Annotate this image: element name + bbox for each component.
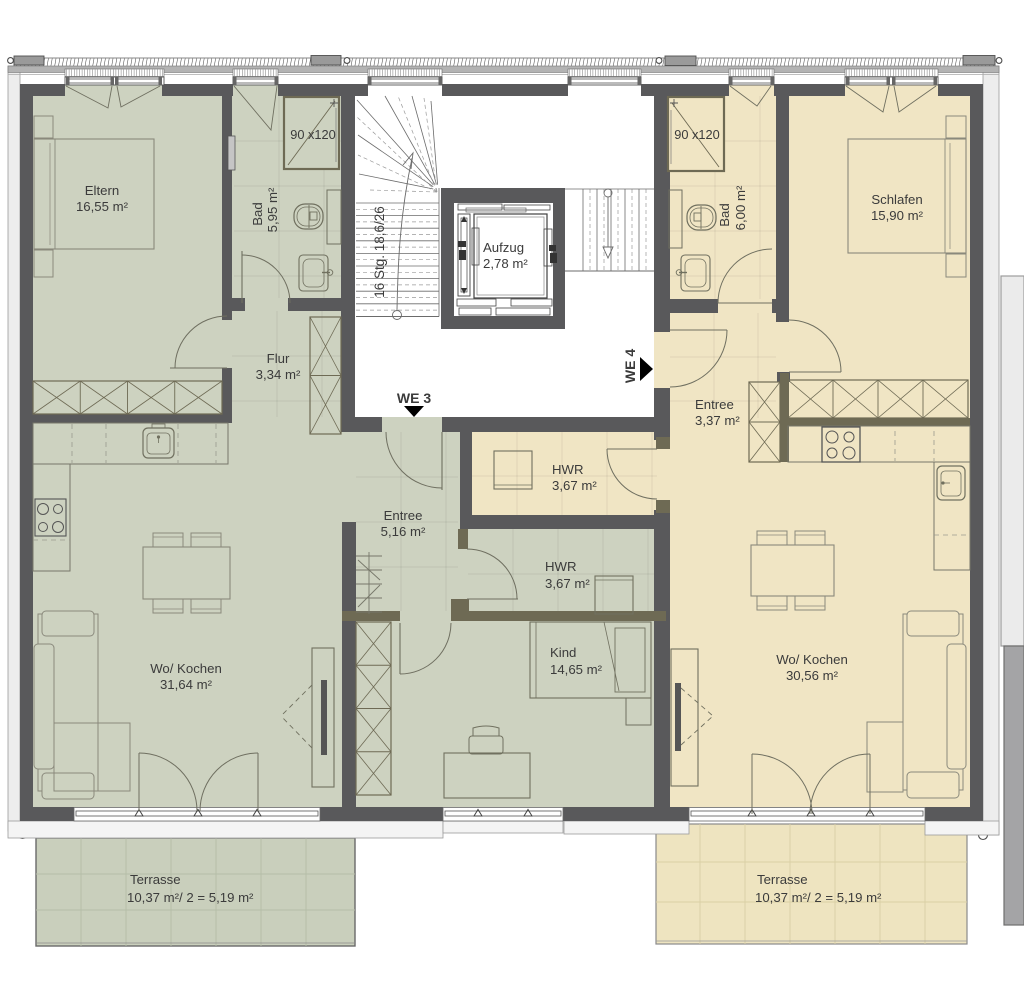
svg-text:Schlafen: Schlafen	[871, 192, 922, 207]
svg-text:5,95 m²: 5,95 m²	[265, 187, 280, 232]
svg-text:14,65 m²: 14,65 m²	[550, 662, 603, 677]
svg-text:Wo/ Kochen: Wo/ Kochen	[776, 652, 848, 667]
svg-text:6,00 m²: 6,00 m²	[733, 185, 748, 230]
svg-text:3,67 m²: 3,67 m²	[552, 478, 597, 493]
svg-text:3,67 m²: 3,67 m²	[545, 576, 590, 591]
svg-text:Entree: Entree	[695, 397, 734, 412]
svg-text:90 x120: 90 x120	[674, 127, 720, 142]
svg-text:Flur: Flur	[267, 351, 290, 366]
svg-text:Wo/ Kochen: Wo/ Kochen	[150, 661, 222, 676]
svg-text:HWR: HWR	[552, 462, 584, 477]
svg-text:10,37 m²/ 2 = 5,19 m²: 10,37 m²/ 2 = 5,19 m²	[755, 890, 882, 905]
svg-text:5,16 m²: 5,16 m²	[381, 524, 426, 539]
svg-text:WE 3: WE 3	[397, 390, 431, 406]
svg-text:WE 4: WE 4	[622, 349, 638, 383]
svg-text:3,34 m²: 3,34 m²	[256, 367, 301, 382]
svg-text:30,56 m²: 30,56 m²	[786, 668, 839, 683]
svg-text:Terrasse: Terrasse	[757, 872, 808, 887]
svg-text:Eltern: Eltern	[85, 183, 119, 198]
svg-text:15,90 m²: 15,90 m²	[871, 208, 924, 223]
svg-text:Bad: Bad	[717, 203, 732, 226]
svg-text:Entree: Entree	[384, 508, 423, 523]
svg-text:HWR: HWR	[545, 559, 577, 574]
svg-text:2,78 m²: 2,78 m²	[483, 256, 528, 271]
svg-text:Aufzug: Aufzug	[483, 240, 524, 255]
svg-text:Bad: Bad	[250, 202, 265, 225]
svg-text:3,37 m²: 3,37 m²	[695, 413, 740, 428]
svg-text:90 x120: 90 x120	[290, 127, 336, 142]
svg-text:16,55 m²: 16,55 m²	[76, 199, 129, 214]
svg-text:16 Stg. 18,6/26: 16 Stg. 18,6/26	[372, 206, 387, 298]
svg-text:31,64 m²: 31,64 m²	[160, 677, 213, 692]
svg-text:Terrasse: Terrasse	[130, 872, 181, 887]
svg-text:10,37 m²/ 2 = 5,19 m²: 10,37 m²/ 2 = 5,19 m²	[127, 890, 254, 905]
svg-text:Kind: Kind	[550, 645, 576, 660]
